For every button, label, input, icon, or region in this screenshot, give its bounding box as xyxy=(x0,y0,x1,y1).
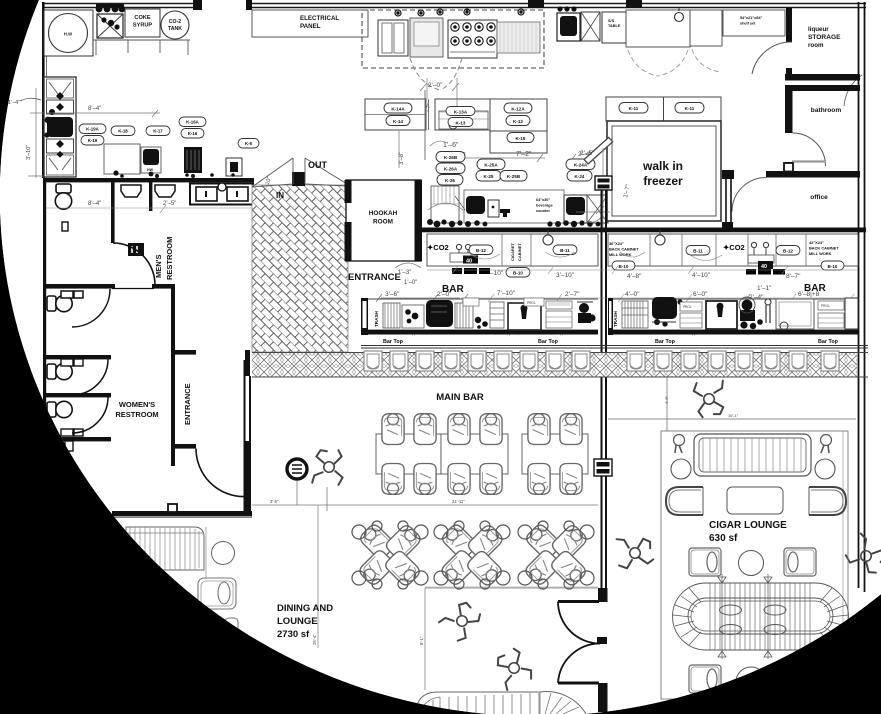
svg-text:2'–7": 2'–7" xyxy=(565,291,580,298)
svg-text:Bar Top: Bar Top xyxy=(818,339,839,345)
svg-text:K-17: K-17 xyxy=(153,129,163,134)
svg-text:K-16: K-16 xyxy=(188,131,198,136)
svg-text:PROL: PROL xyxy=(821,304,830,308)
svg-text:1'–4": 1'–4" xyxy=(8,100,20,106)
svg-text:4'–10": 4'–10" xyxy=(692,272,711,279)
svg-text:MAIN BAR: MAIN BAR xyxy=(436,392,484,403)
svg-text:26'-4": 26'-4" xyxy=(312,634,317,645)
svg-text:beverage: beverage xyxy=(536,204,553,208)
svg-text:RESTROOM: RESTROOM xyxy=(115,410,158,419)
svg-text:office: office xyxy=(810,194,828,201)
svg-text:K-11: K-11 xyxy=(629,106,639,111)
svg-text:HW: HW xyxy=(147,168,154,172)
svg-text:K-12: K-12 xyxy=(513,119,523,124)
svg-text:ENTRANCE: ENTRANCE xyxy=(348,272,401,283)
svg-text:6'–0": 6'–0" xyxy=(693,291,708,298)
svg-text:DINING AND: DINING AND xyxy=(277,603,333,614)
svg-text:K-13A: K-13A xyxy=(454,110,468,115)
svg-text:Bar Top: Bar Top xyxy=(655,339,676,345)
svg-text:4'–0": 4'–0" xyxy=(625,291,640,298)
svg-text:4'-6": 4'-6" xyxy=(664,395,669,404)
svg-text:21'-11": 21'-11" xyxy=(452,499,465,504)
svg-text:K-19: K-19 xyxy=(88,138,98,143)
svg-text:TABLE: TABLE xyxy=(608,24,621,28)
svg-text:S/S: S/S xyxy=(608,19,615,23)
svg-text:COKE: COKE xyxy=(134,15,150,21)
svg-text:2'–0": 2'–0" xyxy=(428,82,443,89)
svg-text:MEN'S: MEN'S xyxy=(154,255,163,278)
svg-text:K-15: K-15 xyxy=(516,136,526,141)
svg-text:liqueur: liqueur xyxy=(808,26,829,33)
svg-text:K-24: K-24 xyxy=(575,174,585,179)
svg-text:1'–0": 1'–0" xyxy=(404,280,417,286)
svg-text:4'–8": 4'–8" xyxy=(627,273,642,280)
svg-text:PANEL: PANEL xyxy=(300,23,321,30)
svg-text:BACK CABINET: BACK CABINET xyxy=(809,246,839,251)
svg-text:K-14: K-14 xyxy=(393,119,403,124)
svg-text:42"X24": 42"X24" xyxy=(809,240,824,245)
svg-text:Support: Support xyxy=(503,332,516,336)
svg-text:TRASH: TRASH xyxy=(613,310,618,327)
svg-text:2'–0": 2'–0" xyxy=(437,291,452,298)
svg-text:K-26B: K-26B xyxy=(444,155,458,160)
svg-text:8'–4": 8'–4" xyxy=(88,201,101,207)
svg-text:K-6: K-6 xyxy=(245,141,253,146)
svg-text:1'–1": 1'–1" xyxy=(757,285,772,292)
svg-text:K-16A: K-16A xyxy=(186,120,200,125)
svg-text:H.W: H.W xyxy=(64,32,72,37)
svg-text:K-13: K-13 xyxy=(456,121,466,126)
svg-text:K-18: K-18 xyxy=(118,129,128,134)
svg-text:8'-1": 8'-1" xyxy=(419,636,424,645)
svg-text:freezer: freezer xyxy=(643,174,683,188)
svg-text:PROL: PROL xyxy=(527,301,536,305)
svg-text:HOOKAH: HOOKAH xyxy=(369,210,398,217)
svg-text:MILL WORK: MILL WORK xyxy=(809,251,832,256)
svg-text:K-24A: K-24A xyxy=(574,163,588,168)
svg-text:WOMEN'S: WOMEN'S xyxy=(119,400,155,409)
svg-text:7'–2": 7'–2" xyxy=(516,151,532,158)
svg-text:TRASH: TRASH xyxy=(374,310,379,327)
svg-text:K-12A: K-12A xyxy=(511,107,525,112)
svg-text:2'–5": 2'–5" xyxy=(163,201,176,207)
svg-text:1'–3": 1'–3" xyxy=(398,270,411,276)
svg-text:Support: Support xyxy=(556,332,569,336)
svg-text:Support: Support xyxy=(688,332,701,336)
svg-text:CIGAR LOUNGE: CIGAR LOUNGE xyxy=(709,520,787,531)
svg-text:3'–8": 3'–8" xyxy=(399,152,405,165)
svg-text:1'–6": 1'–6" xyxy=(443,142,459,149)
svg-text:B-11: B-11 xyxy=(560,248,570,253)
svg-text:LOUNGE: LOUNGE xyxy=(277,616,318,627)
svg-text:Bar Top: Bar Top xyxy=(383,339,404,345)
svg-text:K-25B: K-25B xyxy=(507,174,521,179)
svg-text:counter: counter xyxy=(536,209,550,213)
svg-text:ELECTRICAL: ELECTRICAL xyxy=(300,15,339,22)
svg-text:ROOM: ROOM xyxy=(373,219,393,226)
svg-text:STORAGE: STORAGE xyxy=(808,34,841,41)
svg-text:3'–10": 3'–10" xyxy=(556,272,575,279)
svg-text:36"X24": 36"X24" xyxy=(609,241,624,246)
svg-text:K-25A: K-25A xyxy=(484,163,498,168)
svg-text:6'–8|+8: 6'–8|+8 xyxy=(798,291,820,298)
svg-text:54"x21"x84": 54"x21"x84" xyxy=(740,16,762,20)
svg-text:OUT: OUT xyxy=(308,160,328,170)
svg-text:BACK CABINET: BACK CABINET xyxy=(609,247,639,252)
svg-text:room: room xyxy=(808,42,824,49)
svg-text:2'–4": 2'–4" xyxy=(749,294,764,301)
svg-text:8'–7": 8'–7" xyxy=(786,273,801,280)
svg-text:walk in: walk in xyxy=(642,159,683,173)
svg-text:B-12: B-12 xyxy=(476,248,486,253)
svg-text:–10": –10" xyxy=(490,270,504,277)
svg-text:64"x30": 64"x30" xyxy=(536,198,550,202)
svg-text:2730 sf: 2730 sf xyxy=(277,629,310,640)
svg-text:IN: IN xyxy=(276,191,284,200)
svg-text:B-10: B-10 xyxy=(513,271,523,276)
svg-text:2'–5": 2'–5" xyxy=(580,150,595,157)
svg-text:3'–10": 3'–10" xyxy=(26,145,32,160)
svg-text:CABINET: CABINET xyxy=(517,243,522,261)
svg-text:✦CO2: ✦CO2 xyxy=(427,243,449,252)
svg-text:SYRUP: SYRUP xyxy=(133,23,153,29)
svg-text:K-26: K-26 xyxy=(445,178,455,183)
svg-text:K-14A: K-14A xyxy=(391,107,405,112)
svg-text:TANK: TANK xyxy=(168,26,182,32)
svg-text:CIGARET: CIGARET xyxy=(510,242,515,261)
svg-text:shelf set: shelf set xyxy=(740,22,756,26)
svg-text:RESTROOM: RESTROOM xyxy=(165,237,174,280)
svg-text:K-11: K-11 xyxy=(685,106,695,111)
svg-text:B-10: B-10 xyxy=(619,264,629,269)
svg-text:CO-2: CO-2 xyxy=(169,19,182,25)
svg-text:630 sf: 630 sf xyxy=(709,533,738,544)
svg-text:B-10: B-10 xyxy=(828,264,838,269)
svg-text:7'–10": 7'–10" xyxy=(497,290,516,297)
svg-text:✦CO2: ✦CO2 xyxy=(723,243,745,252)
svg-text:ENTRANCE: ENTRANCE xyxy=(183,383,192,425)
svg-text:B-11: B-11 xyxy=(693,249,703,254)
svg-text:K-26A: K-26A xyxy=(444,167,458,172)
svg-text:K-25: K-25 xyxy=(484,174,494,179)
svg-text:Bar Top: Bar Top xyxy=(538,339,559,345)
svg-text:8'–4": 8'–4" xyxy=(88,106,101,112)
svg-text:3'–6": 3'–6" xyxy=(385,291,400,298)
svg-text:40: 40 xyxy=(466,259,472,265)
svg-text:3'-5": 3'-5" xyxy=(270,499,279,504)
svg-text:bathroom: bathroom xyxy=(811,107,842,114)
svg-text:B-12: B-12 xyxy=(783,249,793,254)
svg-text:PROL: PROL xyxy=(683,305,692,309)
svg-text:Support: Support xyxy=(408,332,421,336)
svg-text:K-19A: K-19A xyxy=(86,127,100,132)
svg-text:16'-1": 16'-1" xyxy=(728,413,739,418)
